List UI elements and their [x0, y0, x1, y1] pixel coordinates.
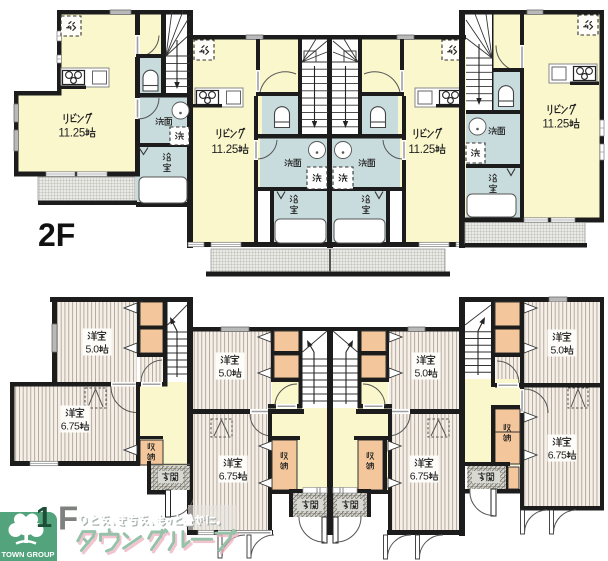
svg-text:5.0: 5.0	[218, 368, 232, 380]
svg-text:6.75: 6.75	[61, 421, 80, 433]
svg-text:6.75: 6.75	[548, 450, 567, 462]
svg-text:6.75: 6.75	[219, 471, 238, 483]
svg-text:TOWN GROUP: TOWN GROUP	[1, 550, 54, 559]
svg-text:5.0: 5.0	[414, 368, 428, 380]
svg-text:11.25: 11.25	[542, 118, 569, 130]
svg-text:11.25: 11.25	[58, 127, 85, 139]
svg-text:11.25: 11.25	[408, 144, 435, 156]
svg-text:1: 1	[36, 502, 52, 534]
svg-text:5.0: 5.0	[550, 345, 564, 357]
svg-text:F: F	[58, 500, 78, 537]
svg-text:6.75: 6.75	[410, 471, 429, 483]
svg-text:11.25: 11.25	[211, 144, 238, 156]
svg-text:2F: 2F	[38, 217, 75, 253]
svg-text:5.0: 5.0	[85, 344, 99, 356]
